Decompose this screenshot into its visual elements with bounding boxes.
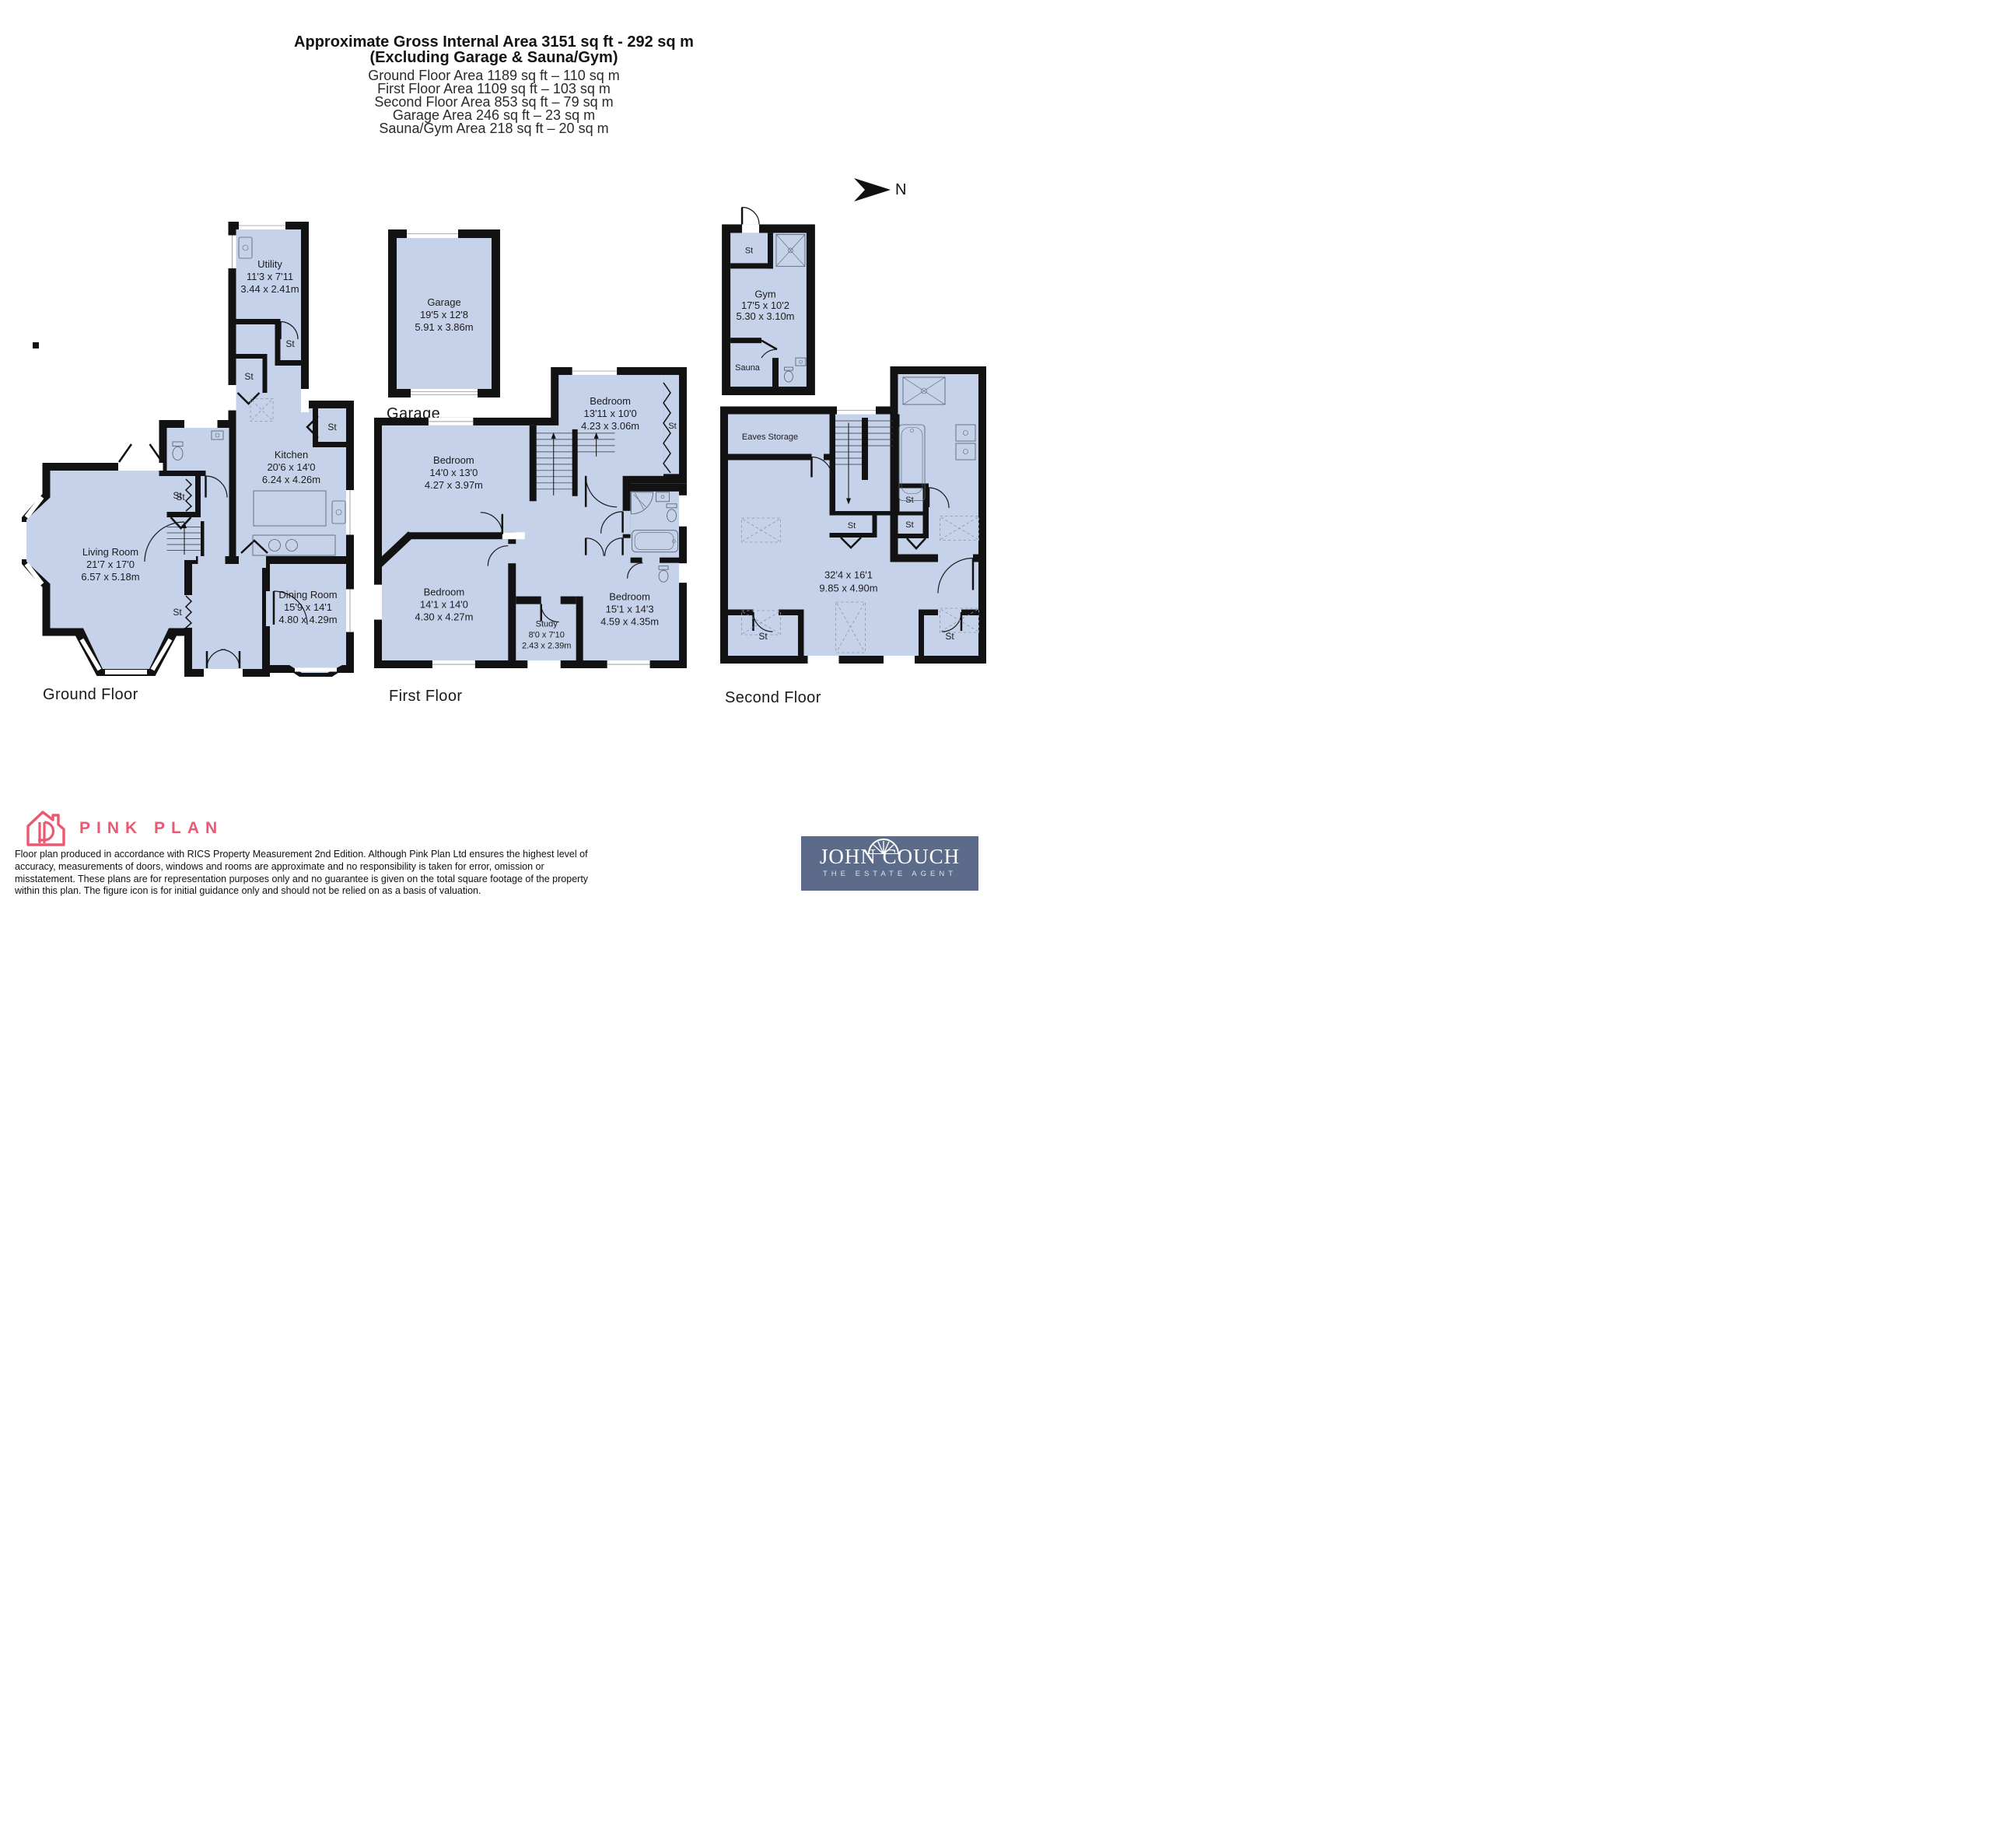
utility-m: 3.44 x 2.41m	[240, 283, 299, 295]
bed3-name: Bedroom	[424, 587, 465, 598]
pink-plan-logo-icon	[23, 809, 68, 847]
bed1-m: 4.27 x 3.97m	[425, 479, 483, 491]
second-main-m: 9.85 x 4.90m	[819, 583, 877, 594]
disclaimer-text: Floor plan produced in accordance with R…	[15, 849, 593, 898]
pink-plan-brand: PINK PLAN	[79, 819, 223, 838]
st-label: St	[173, 490, 182, 501]
utility-name: Utility	[257, 258, 282, 270]
bed1-ft: 14'0 x 13'0	[429, 467, 478, 478]
north-arrow-icon	[852, 177, 893, 202]
kitchen-ft: 20'6 x 14'0	[267, 461, 315, 473]
st-label: St	[848, 521, 856, 531]
study-ft: 8'0 x 7'10	[529, 631, 565, 640]
st-label: St	[244, 371, 254, 382]
header: Approximate Gross Internal Area 3151 sq …	[0, 34, 988, 135]
gym-m: 5.30 x 3.10m	[737, 310, 795, 322]
bed2-ft: 13'11 x 10'0	[584, 408, 637, 419]
kitchen-name: Kitchen	[275, 449, 308, 461]
utility-ft: 11'3 x 7'11	[247, 271, 293, 282]
dining-m: 4.80 x 4.29m	[278, 614, 337, 625]
ground-floor-caption: Ground Floor	[43, 686, 138, 704]
agent-tagline: THE ESTATE AGENT	[801, 870, 978, 878]
gym-ft: 17'5 x 10'2	[741, 299, 789, 311]
bed2-m: 4.23 x 3.06m	[581, 420, 639, 432]
second-main-ft: 32'4 x 16'1	[824, 569, 873, 581]
st-label: St	[745, 246, 753, 255]
garage-name: Garage	[427, 296, 460, 308]
st-label: St	[668, 422, 676, 431]
north-label: N	[895, 181, 906, 199]
second-floor-caption: Second Floor	[725, 689, 821, 707]
first-floor-plan: Bedroom 14'0 x 13'0 4.27 x 3.97m Bedroom…	[374, 367, 695, 673]
eaves-storage-label: Eaves Storage	[742, 432, 798, 442]
living-m: 6.57 x 5.18m	[81, 571, 139, 583]
bed4-m: 4.59 x 4.35m	[600, 616, 659, 628]
sauna-entry-door	[742, 207, 759, 233]
floorplan-sheet: Approximate Gross Internal Area 3151 sq …	[0, 0, 1008, 914]
gym-name: Gym	[754, 288, 775, 299]
first-floor-caption: First Floor	[389, 688, 462, 706]
st-label: St	[905, 520, 913, 530]
study-name: Study	[536, 620, 558, 629]
bed3-ft: 14'1 x 14'0	[420, 599, 468, 611]
living-name: Living Room	[82, 546, 138, 558]
st-label: St	[945, 631, 954, 642]
st-label: St	[905, 496, 913, 505]
garage-m: 5.91 x 3.86m	[415, 321, 473, 333]
agent-logo: JOHN COUCH THE ESTATE AGENT	[801, 836, 978, 891]
bed3-m: 4.30 x 4.27m	[415, 611, 473, 623]
st-label: St	[327, 422, 337, 432]
fanlight-icon	[866, 839, 901, 854]
ground-floor-plan: Utility 11'3 x 7'11 3.44 x 2.41m Kitchen…	[21, 222, 354, 677]
second-floor-plan: Eaves Storage 32'4 x 16'1 9.85 x 4.90m S…	[720, 366, 986, 664]
dining-ft: 15'9 x 14'1	[284, 601, 332, 613]
st-label: St	[173, 607, 182, 618]
bed4-name: Bedroom	[609, 591, 650, 603]
kitchen-m: 6.24 x 4.26m	[262, 474, 320, 485]
garage-ft: 19'5 x 12'8	[420, 309, 468, 320]
page-title: Approximate Gross Internal Area 3151 sq …	[0, 34, 988, 50]
area-sauna: Sauna/Gym Area 218 sq ft – 20 sq m	[0, 122, 988, 135]
bed1-name: Bedroom	[433, 454, 474, 466]
dining-name: Dining Room	[278, 589, 337, 601]
living-ft: 21'7 x 17'0	[86, 559, 135, 570]
bed4-ft: 15'1 x 14'3	[606, 604, 654, 615]
st-label: St	[758, 631, 768, 642]
study-m: 2.43 x 2.39m	[522, 642, 571, 651]
st-label: St	[285, 338, 295, 349]
page-subtitle: (Excluding Garage & Sauna/Gym)	[0, 50, 988, 65]
bed2-name: Bedroom	[590, 395, 631, 407]
